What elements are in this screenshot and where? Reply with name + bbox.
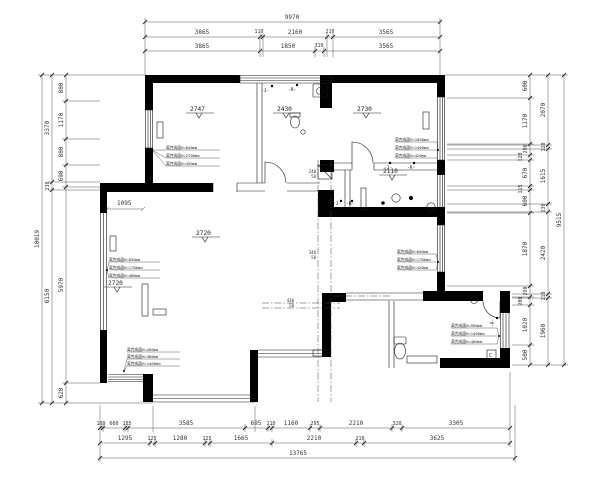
- dim-label: 1170: [522, 113, 529, 128]
- equipment-box-label: C: [489, 353, 492, 359]
- cold-water-label: -J-: [261, 88, 269, 94]
- dim-label: 2070: [540, 102, 547, 117]
- level-value: 2747: [190, 106, 205, 113]
- level-symbol: [379, 175, 407, 180]
- dim-label: 3625: [430, 435, 445, 442]
- dim-label: 9515: [556, 212, 563, 227]
- annotation-line: 离完成面H=1700mm: [109, 265, 143, 270]
- dim-label: 1170: [58, 112, 65, 127]
- hot-water-label: -R-: [288, 87, 296, 93]
- dim-label: 2210: [349, 420, 364, 427]
- water-point: [382, 202, 385, 205]
- dim-label: 3585: [179, 420, 194, 427]
- opening-dim-line: [105, 207, 145, 211]
- annotation-line: 离完成面H=1460mm: [127, 361, 161, 366]
- dim-label: 600: [522, 80, 529, 91]
- annotation-line: 离完成面H=400mm: [451, 339, 483, 344]
- dim-label: 600: [522, 195, 529, 206]
- level-symbol: [192, 237, 220, 242]
- windows: [101, 97, 510, 382]
- annotation-line: 离完成面H=420mm: [395, 153, 427, 158]
- floor-plan-sheet: 9970 3865 110 2160 210 3565 3865 1850 31…: [0, 0, 600, 480]
- wall: [145, 75, 240, 83]
- dim-label: 320: [392, 421, 401, 427]
- dim-label: 1870: [522, 241, 529, 256]
- dim-label: 210: [355, 436, 364, 442]
- dim-label: 1960: [540, 323, 547, 338]
- level-value: 2720: [108, 280, 123, 287]
- dim-label: 310: [314, 43, 323, 49]
- dim-label: 3370: [44, 120, 51, 135]
- toilet: [291, 116, 300, 128]
- level-markers: 2747 2430 2730 2110 2720 2720: [104, 106, 407, 292]
- dim-label: 100: [96, 421, 105, 427]
- dim-label: 6150: [44, 288, 51, 303]
- door-swing: [265, 162, 286, 183]
- wall: [100, 183, 213, 192]
- dim-label: 3865: [195, 29, 210, 36]
- wall: [437, 75, 445, 97]
- annotation-line: 离完成面H=840mm: [166, 145, 198, 150]
- dim-label: 2160: [288, 29, 303, 36]
- opening-dim: 1095: [117, 200, 132, 207]
- wall: [143, 374, 153, 402]
- annotation-line: 离完成面H=840mm: [397, 249, 429, 254]
- window-glazing-lines: [101, 97, 510, 382]
- cold-water-label: -J-: [333, 201, 341, 207]
- dim-label: 9970: [285, 14, 300, 21]
- annotation-line: 离完成面H=260mm: [127, 347, 159, 352]
- annotation-line: 离完成面H=2700mm: [166, 153, 200, 158]
- dim-label: 295: [310, 421, 319, 427]
- floor-plan-drawing: 9970 3865 110 2160 210 3565 3865 1850 31…: [0, 0, 600, 480]
- dim-label: 290: [523, 286, 529, 295]
- dim-label: 10019: [34, 230, 41, 248]
- dimension-ticks: [40, 20, 566, 460]
- radiator: [423, 112, 429, 129]
- dim-label: 290: [523, 144, 529, 153]
- annotation-line: 离完成面H=420mm: [397, 265, 429, 270]
- dim-label: 200: [518, 296, 524, 305]
- floor-drain: [301, 130, 305, 134]
- plumbing-points: [271, 84, 498, 319]
- dim-label: 620: [58, 387, 65, 398]
- annotation-dots: [106, 149, 500, 372]
- dim-label: 2420: [540, 245, 547, 260]
- dim-label: 500: [522, 349, 529, 360]
- duct-dim: 50: [311, 255, 316, 260]
- wall: [500, 291, 510, 313]
- wall: [330, 207, 445, 217]
- dim-label: 800: [58, 82, 65, 93]
- dim-label: 1020: [522, 317, 529, 332]
- water-point: [409, 196, 413, 200]
- wall: [437, 272, 445, 291]
- dim-label: 110: [541, 291, 547, 300]
- dim-label: 13765: [289, 450, 307, 457]
- dim-label: 5970: [58, 277, 65, 292]
- wall: [423, 291, 483, 301]
- toilet-tank: [290, 113, 300, 117]
- annotation-line: 离完成面H=380mm: [127, 354, 159, 359]
- dim-label: 1850: [281, 43, 296, 50]
- wall: [250, 350, 258, 402]
- dim-label: 125: [147, 436, 156, 442]
- radiator: [142, 284, 148, 316]
- wall: [322, 300, 331, 357]
- dimension-linework: [38, 18, 568, 462]
- duct-dim: 50: [311, 174, 316, 179]
- level-value: 2720: [196, 230, 211, 237]
- counter: [153, 309, 166, 315]
- drain-point: [392, 194, 400, 202]
- annotation-line: 离完成面H=830mm: [109, 257, 141, 262]
- dim-label: 1160: [284, 420, 299, 427]
- dim-label: 210: [325, 29, 334, 35]
- level-symbol: [186, 113, 214, 118]
- dim-label: 690: [58, 170, 65, 181]
- wall: [440, 358, 510, 368]
- annotation-line: 离完成面H=950mm: [451, 323, 483, 328]
- hot-water-label: -R-: [407, 165, 415, 171]
- door-swing: [483, 301, 500, 318]
- dim-label: 3565: [379, 43, 394, 50]
- dim-label: 800: [58, 146, 65, 157]
- wall: [320, 75, 332, 108]
- annotation-line: 离完成面H=1700mm: [397, 257, 431, 262]
- annotation-line: 离完成面H=400mm: [109, 273, 141, 278]
- toilet: [395, 343, 406, 359]
- dim-label: 2210: [307, 435, 322, 442]
- dim-lines-bottom: [100, 428, 515, 458]
- cabinet: [361, 188, 366, 210]
- dim-label: 110: [254, 29, 263, 35]
- level-symbol: [353, 113, 381, 118]
- extension-lines: [38, 18, 568, 462]
- radiator: [157, 122, 163, 138]
- level-value: 2730: [357, 106, 372, 113]
- dim-label: 115: [518, 184, 524, 193]
- duct-dim: 50: [289, 303, 294, 308]
- dim-label: 1295: [118, 435, 133, 442]
- wall: [145, 148, 153, 186]
- wall: [100, 330, 107, 383]
- cold-water-label: -J-: [384, 165, 392, 171]
- level-value: 2430: [277, 106, 292, 113]
- dim-label: 1280: [173, 435, 188, 442]
- annotation-line: 离完成面H=1050mm: [395, 137, 429, 142]
- dim-label: 230: [541, 203, 547, 212]
- wall: [437, 160, 445, 175]
- wall: [145, 83, 153, 110]
- dim-label: 660: [109, 421, 118, 427]
- dim-label: 125: [202, 436, 211, 442]
- dim-label: 120: [541, 142, 547, 151]
- hot-water-label: -R-: [490, 319, 496, 327]
- dim-label: 1615: [540, 168, 547, 183]
- dim-label: 3305: [449, 420, 464, 427]
- wall: [332, 75, 438, 83]
- dim-label: 105: [122, 421, 131, 427]
- dim-label: 1665: [234, 435, 249, 442]
- walls: [100, 75, 510, 402]
- dim-label: 120: [518, 152, 524, 161]
- vanity: [407, 356, 437, 363]
- annotation-line: 离完成面H=450mm: [166, 161, 198, 166]
- hot-water-label: -R-: [346, 201, 354, 207]
- dim-label: 670: [522, 167, 529, 178]
- dim-label: 110: [266, 421, 275, 427]
- level-symbol: [104, 287, 132, 292]
- dim-label: 230: [45, 181, 51, 190]
- dim-label: 3865: [195, 43, 210, 50]
- radiator: [110, 236, 116, 251]
- dim-label: 3565: [379, 29, 394, 36]
- door-swing: [352, 142, 373, 163]
- annotation-line: 离完成面H=1400mm: [451, 331, 485, 336]
- annotation-line: 离完成面H=1400mm: [395, 145, 429, 150]
- dim-label: 695: [251, 420, 262, 427]
